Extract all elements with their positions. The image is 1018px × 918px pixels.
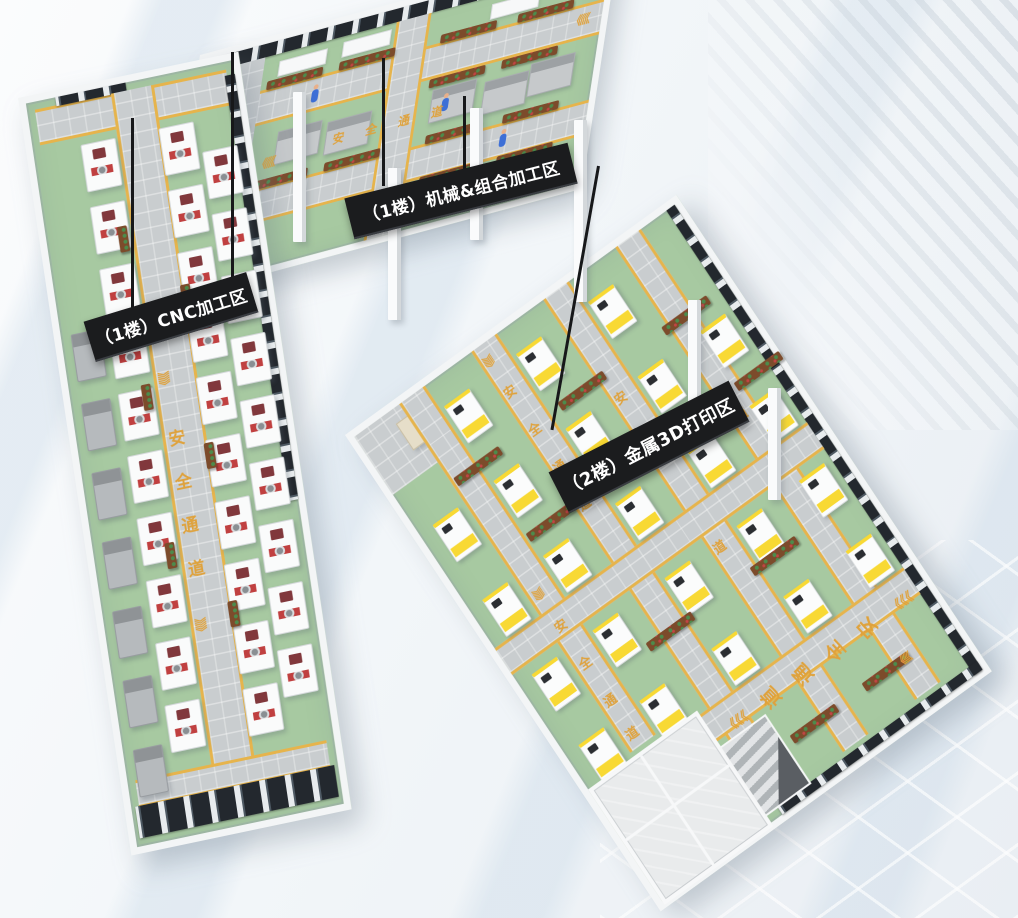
cnc-machine [277, 643, 319, 698]
gray-machine [91, 467, 127, 521]
cnc-machine [155, 636, 197, 691]
support-pillar [768, 388, 781, 500]
floor-char: 安 [168, 429, 187, 449]
cnc-machine [249, 456, 291, 511]
cnc-machine [127, 449, 169, 504]
floor-char: 通 [181, 516, 200, 536]
cnc-machine [118, 387, 160, 442]
cnc-machine [230, 332, 272, 387]
gray-machine [133, 744, 169, 798]
chevron-triple-mark: 《《《 [158, 372, 172, 392]
floor-char: 道 [187, 560, 206, 580]
cnc-machine [146, 574, 188, 629]
cnc-machine [158, 121, 200, 176]
banner-pole [131, 118, 134, 308]
gray-machine [102, 536, 138, 590]
cnc-machine [258, 519, 300, 574]
cnc-machine [164, 698, 206, 753]
gray-machine [112, 606, 148, 660]
banner-pole [382, 58, 385, 186]
cnc-machine [239, 394, 281, 449]
cnc-machine [168, 184, 210, 239]
room-partition [626, 764, 730, 841]
cnc-machine [202, 145, 244, 200]
floor-char: 道 [430, 104, 443, 119]
support-pillar [293, 92, 306, 242]
factory-3d-floorplan: 《《《《《《 安 全 通 道 安全通道安全通道道通安《《《《《《《《《 《《《 … [0, 0, 1018, 918]
cnc-machine [233, 620, 275, 675]
banner-pole [231, 52, 234, 304]
cnc-machine [242, 682, 284, 737]
chevron-mark: 《《《 [255, 155, 274, 172]
cnc-machine [267, 581, 309, 636]
cnc-machine [196, 371, 238, 426]
gray-machine [122, 675, 158, 729]
floor-char: 全 [365, 122, 378, 137]
gray-machine [81, 398, 117, 452]
cnc-machine [214, 495, 256, 550]
cnc-machine [80, 138, 122, 193]
room-partition [640, 755, 714, 865]
plant-box [557, 370, 607, 411]
chevron-triple-mark: 《《《 [195, 618, 209, 638]
floor-char: 安 [332, 131, 345, 146]
floor-char: 通 [397, 113, 410, 128]
floor-char: 全 [174, 473, 193, 493]
